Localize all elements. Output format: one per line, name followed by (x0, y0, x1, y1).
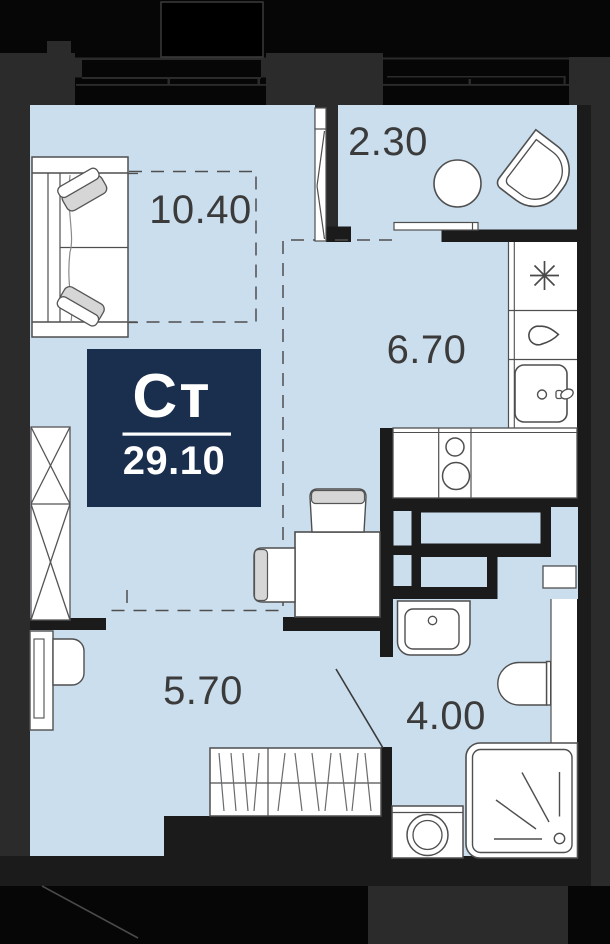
svg-text:4.00: 4.00 (406, 694, 486, 738)
svg-text:6.70: 6.70 (387, 328, 467, 372)
svg-text:2.30: 2.30 (348, 120, 428, 164)
svg-text:Ст: Ст (132, 362, 211, 431)
svg-text:5.70: 5.70 (163, 669, 243, 713)
svg-text:29.10: 29.10 (123, 439, 226, 483)
svg-text:10.40: 10.40 (149, 188, 252, 232)
